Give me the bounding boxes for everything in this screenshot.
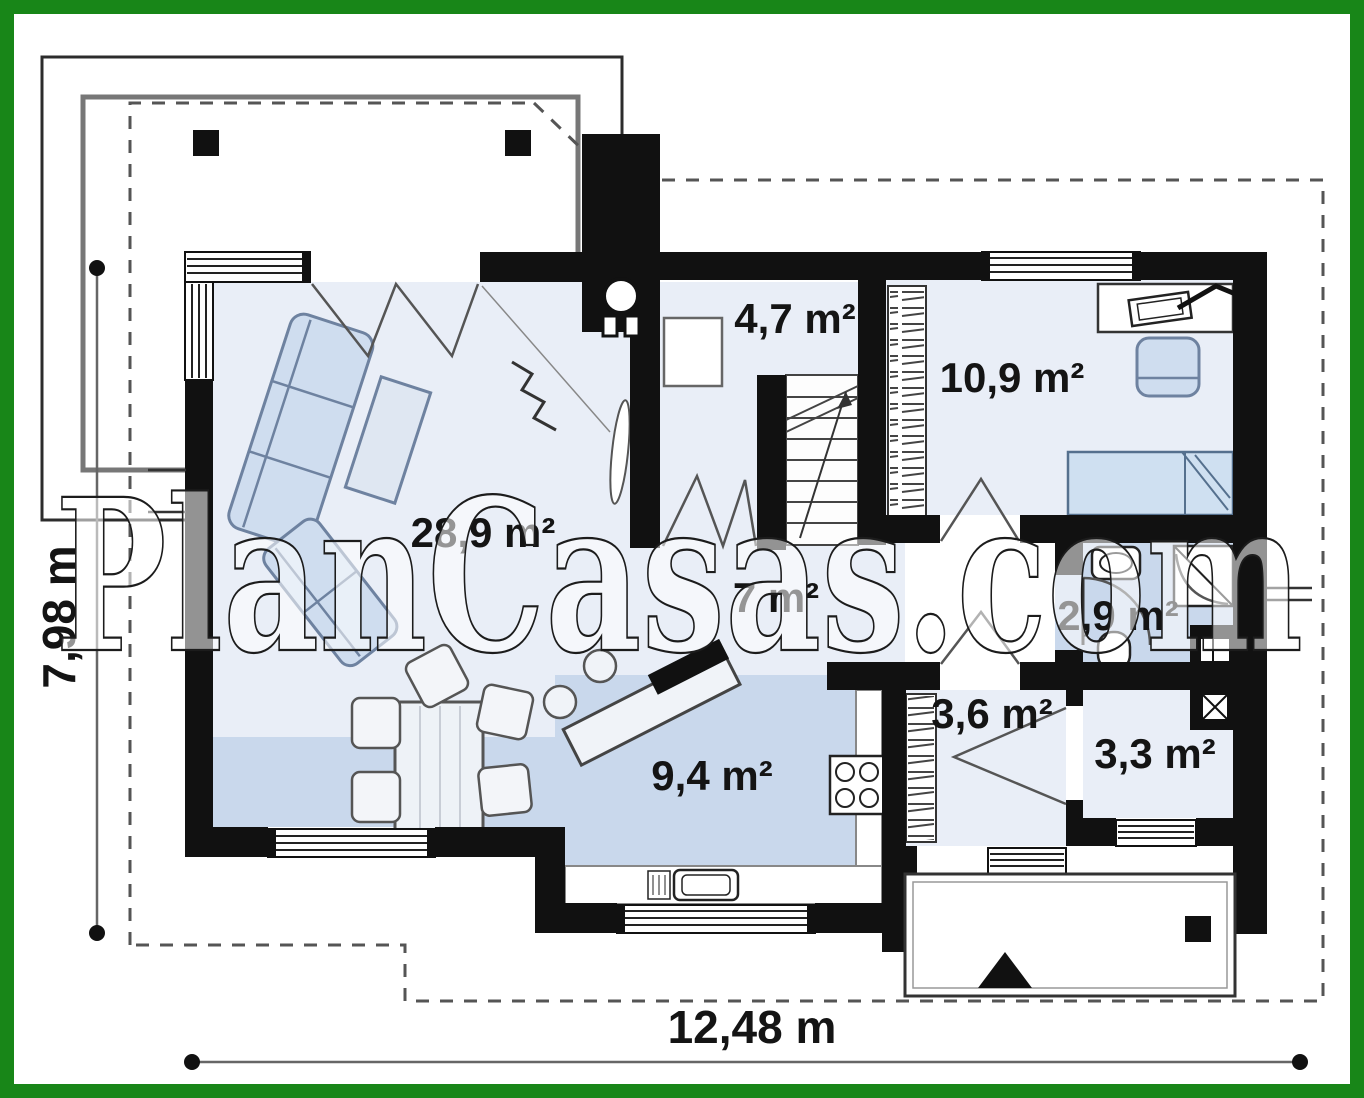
room-label-pantry: 4,7 m²	[734, 295, 855, 342]
cabinet	[664, 318, 722, 386]
floor-plan-drawing: 7,98 m 12,48 m 28,9 m² 9,4 m² 7 m² 4,7 m…	[0, 0, 1364, 1098]
room-label-bedroom: 10,9 m²	[940, 354, 1085, 401]
terrace-post	[193, 130, 219, 156]
dining-window	[268, 829, 435, 857]
porch-post	[1185, 916, 1211, 942]
stove	[830, 756, 884, 814]
kitchen-window	[617, 905, 815, 933]
dining-chair	[478, 764, 533, 817]
entry-window	[988, 848, 1066, 874]
terrace-post	[505, 130, 531, 156]
wc-window	[1116, 820, 1196, 846]
watermark-text: PlanCasas.com	[55, 453, 1303, 700]
room-label-wc: 3,3 m²	[1094, 730, 1215, 777]
entrance-porch	[905, 874, 1235, 996]
bedroom-window	[982, 252, 1140, 280]
dining-table	[395, 702, 483, 847]
kitchen-sink	[648, 870, 738, 900]
dining-chair	[352, 698, 400, 748]
desk	[1098, 284, 1250, 332]
dining-chair	[352, 772, 400, 822]
dimension-width: 12,48 m	[184, 1001, 1308, 1070]
room-label-kitchen: 9,4 m²	[651, 752, 772, 799]
floor-plan-page: 7,98 m 12,48 m 28,9 m² 9,4 m² 7 m² 4,7 m…	[0, 0, 1364, 1098]
width-dimension-label: 12,48 m	[668, 1001, 837, 1053]
armchair	[1137, 338, 1199, 396]
